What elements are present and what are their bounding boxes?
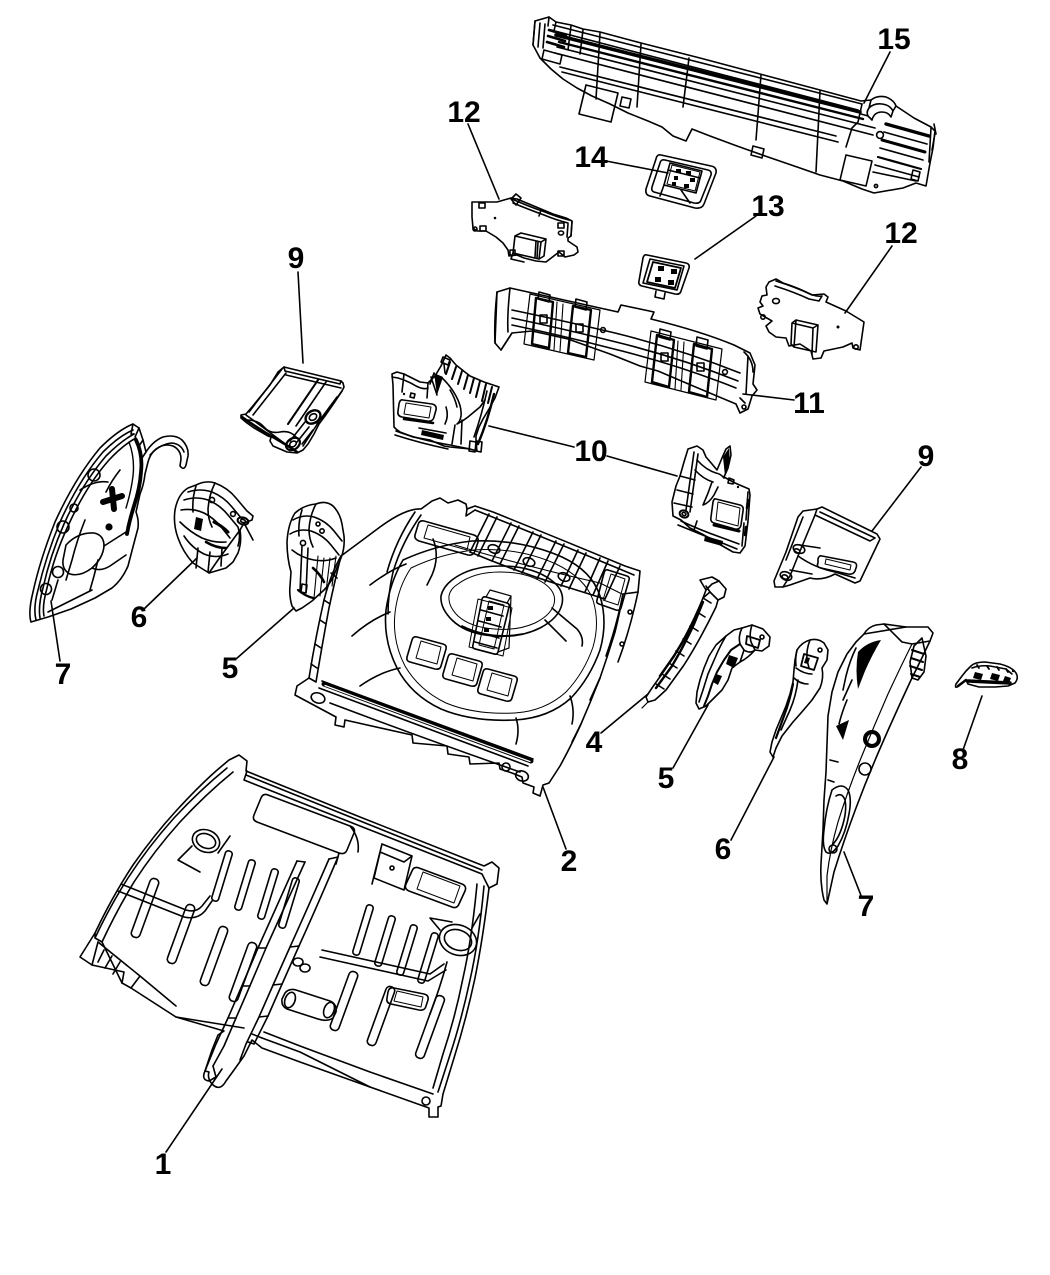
svg-text:9: 9 xyxy=(288,242,305,275)
svg-text:11: 11 xyxy=(793,387,825,420)
svg-text:6: 6 xyxy=(131,601,148,634)
svg-text:4: 4 xyxy=(586,726,603,759)
svg-text:10: 10 xyxy=(574,435,607,468)
svg-text:14: 14 xyxy=(574,141,608,174)
svg-text:9: 9 xyxy=(918,440,935,473)
svg-text:6: 6 xyxy=(715,833,732,866)
svg-text:12: 12 xyxy=(447,96,480,129)
svg-text:7: 7 xyxy=(858,890,875,923)
svg-text:5: 5 xyxy=(222,652,239,685)
svg-text:2: 2 xyxy=(561,845,578,878)
svg-text:15: 15 xyxy=(877,23,910,56)
svg-text:7: 7 xyxy=(55,658,72,691)
svg-text:5: 5 xyxy=(658,762,675,795)
svg-text:13: 13 xyxy=(751,190,784,223)
svg-text:1: 1 xyxy=(155,1148,172,1181)
svg-text:8: 8 xyxy=(952,743,969,776)
svg-text:12: 12 xyxy=(884,217,917,250)
